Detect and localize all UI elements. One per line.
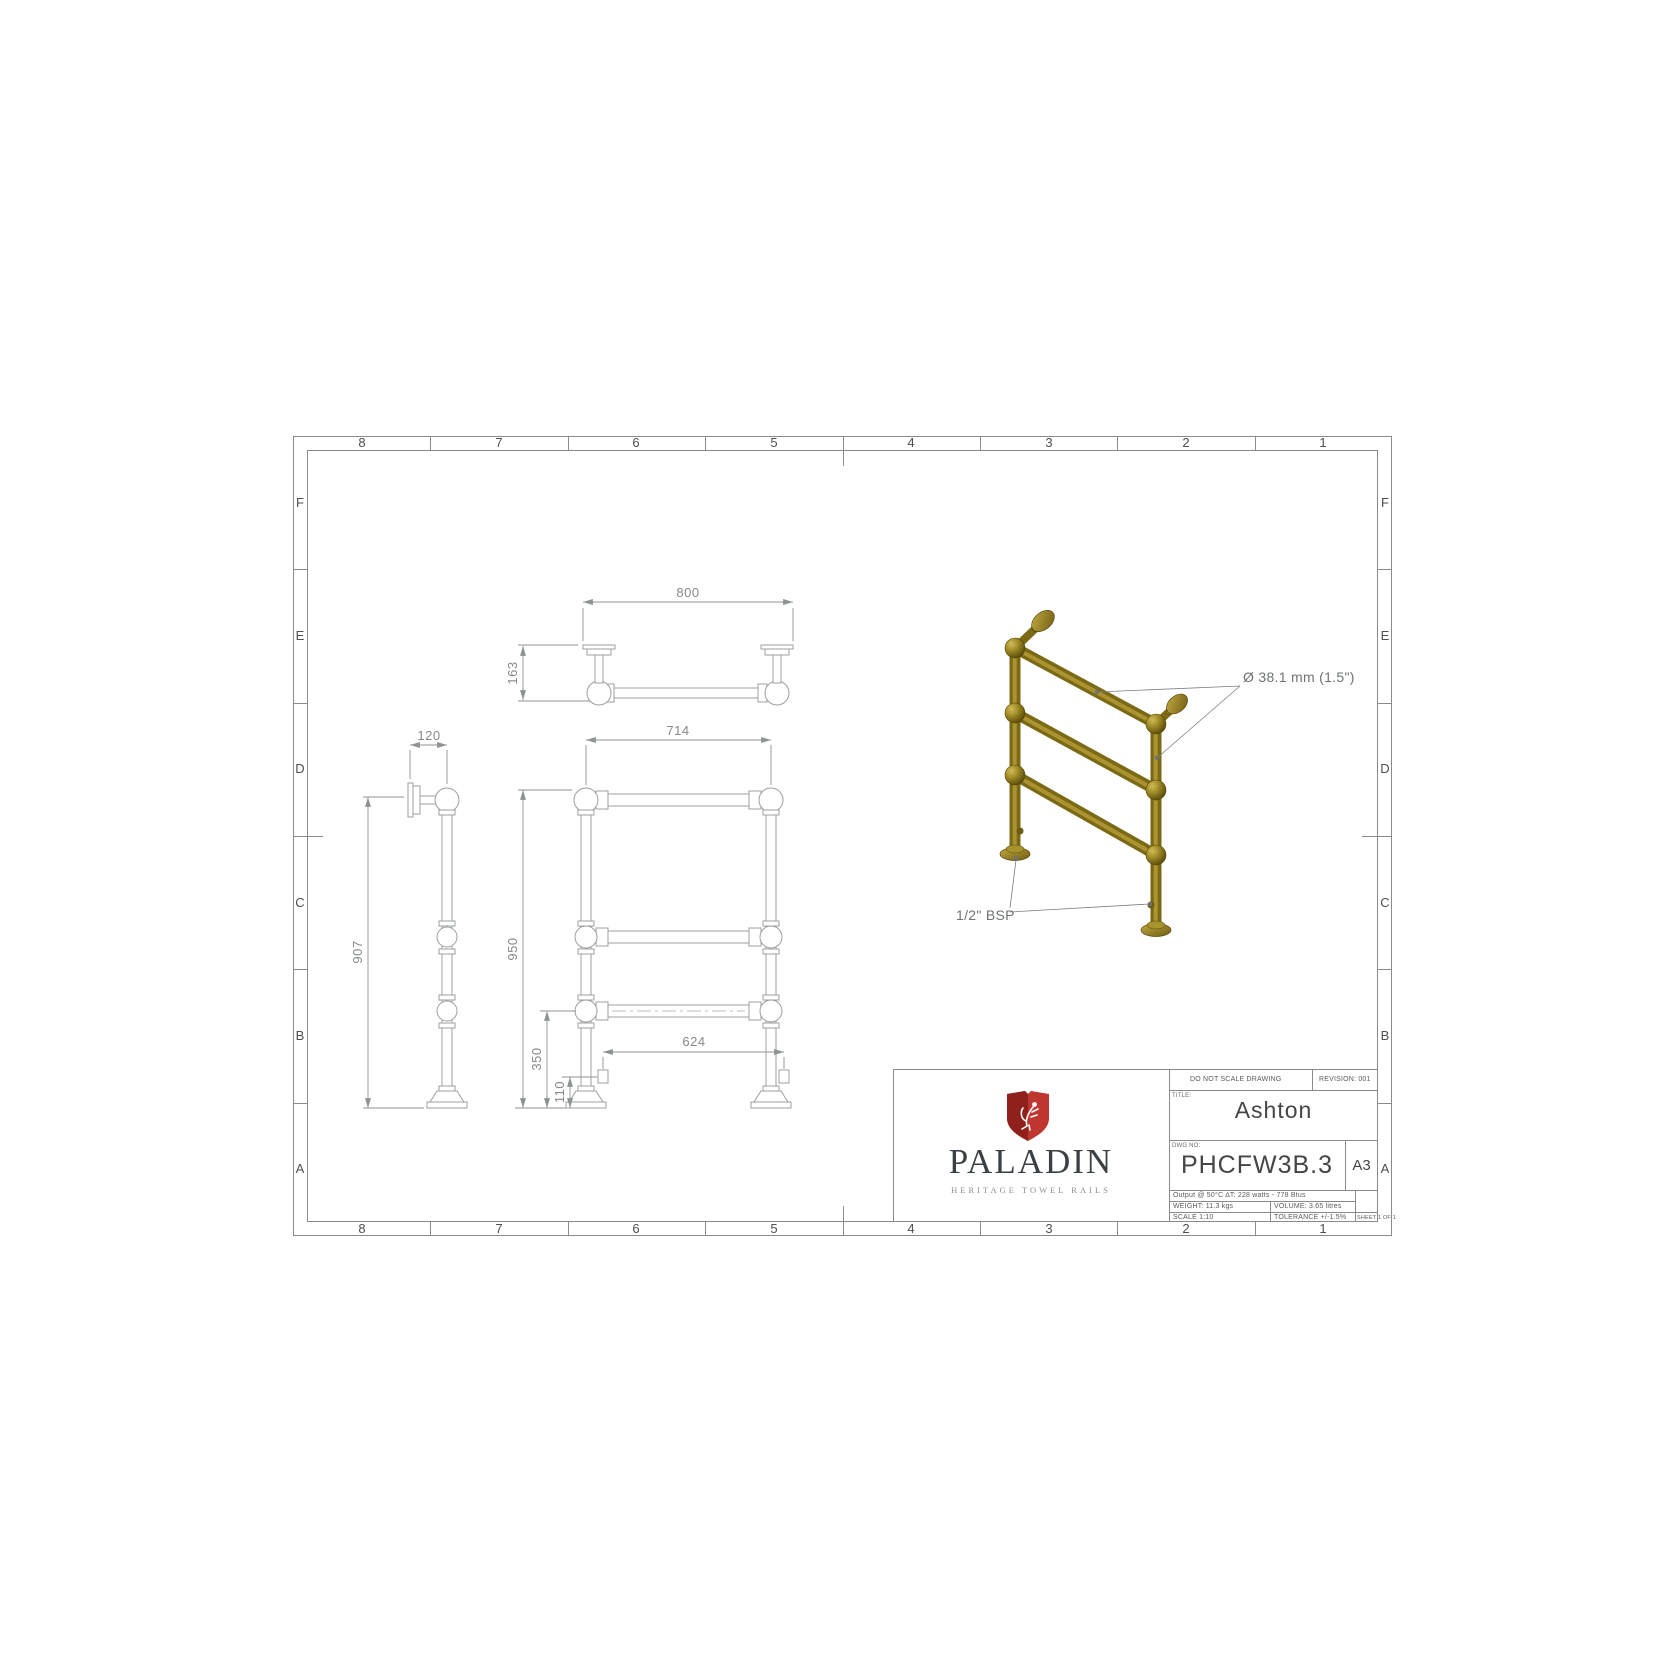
- annotation-tube-diameter: Ø 38.1 mm (1.5"): [1243, 669, 1355, 685]
- dim-110: 110: [552, 1081, 567, 1103]
- sheet-field: SHEET 1 OF 1: [1357, 1215, 1396, 1221]
- scale-field: SCALE 1:10: [1173, 1214, 1214, 1221]
- brand-tagline: HERITAGE TOWEL RAILS: [903, 1185, 1159, 1195]
- paper-size: A3: [1345, 1157, 1378, 1174]
- dim-350: 350: [529, 1047, 544, 1070]
- revision-field: REVISION: 001: [1319, 1076, 1371, 1083]
- title-block-divider: [1169, 1212, 1378, 1213]
- isometric-view: [1000, 606, 1191, 936]
- weight-field: WEIGHT: 11.3 kgs: [1173, 1203, 1233, 1210]
- tolerance-field: TOLERANCE +/-1.5%: [1274, 1214, 1346, 1221]
- do-not-scale-note: DO NOT SCALE DRAWING: [1190, 1076, 1282, 1083]
- title-block-divider: [1312, 1069, 1313, 1090]
- paladin-shield-logo: [1005, 1090, 1051, 1142]
- dim-800: 800: [676, 585, 699, 600]
- dim-120: 120: [417, 728, 440, 743]
- leader-lines: [1010, 686, 1240, 912]
- side-view: [408, 783, 467, 1108]
- annotation-bsp: 1/2" BSP: [956, 907, 1015, 923]
- top-view: [583, 645, 793, 705]
- drawing-sheet: 8 7 6 5 4 3 2 1 8 7 6 5 4 3 2 1 F E D C …: [0, 0, 1676, 1676]
- output-field: Output @ 50°C ∆T: 228 watts - 778 Btus: [1173, 1192, 1306, 1199]
- dim-714: 714: [666, 723, 689, 738]
- title-block-divider: [1270, 1201, 1271, 1222]
- title-block-divider: [1169, 1069, 1170, 1222]
- drawing-number: PHCFW3B.3: [1169, 1151, 1345, 1180]
- brand-name: PALADIN: [903, 1142, 1159, 1182]
- dim-624: 624: [682, 1034, 705, 1049]
- title-block-divider: [1169, 1201, 1355, 1202]
- title-block-divider: [1169, 1140, 1378, 1141]
- dwg-no-label: DWG NO:: [1172, 1143, 1200, 1149]
- front-view: [566, 788, 791, 1108]
- volume-field: VOLUME: 3.65 litres: [1274, 1203, 1342, 1210]
- title-block-divider: [1169, 1090, 1378, 1091]
- dim-950: 950: [505, 937, 520, 960]
- dimension-lines: [363, 602, 793, 1108]
- dim-907: 907: [350, 940, 365, 963]
- drawing-title: Ashton: [1169, 1097, 1378, 1124]
- title-block-divider: [1355, 1190, 1356, 1222]
- title-block-divider: [1169, 1190, 1378, 1191]
- dim-163: 163: [505, 661, 520, 684]
